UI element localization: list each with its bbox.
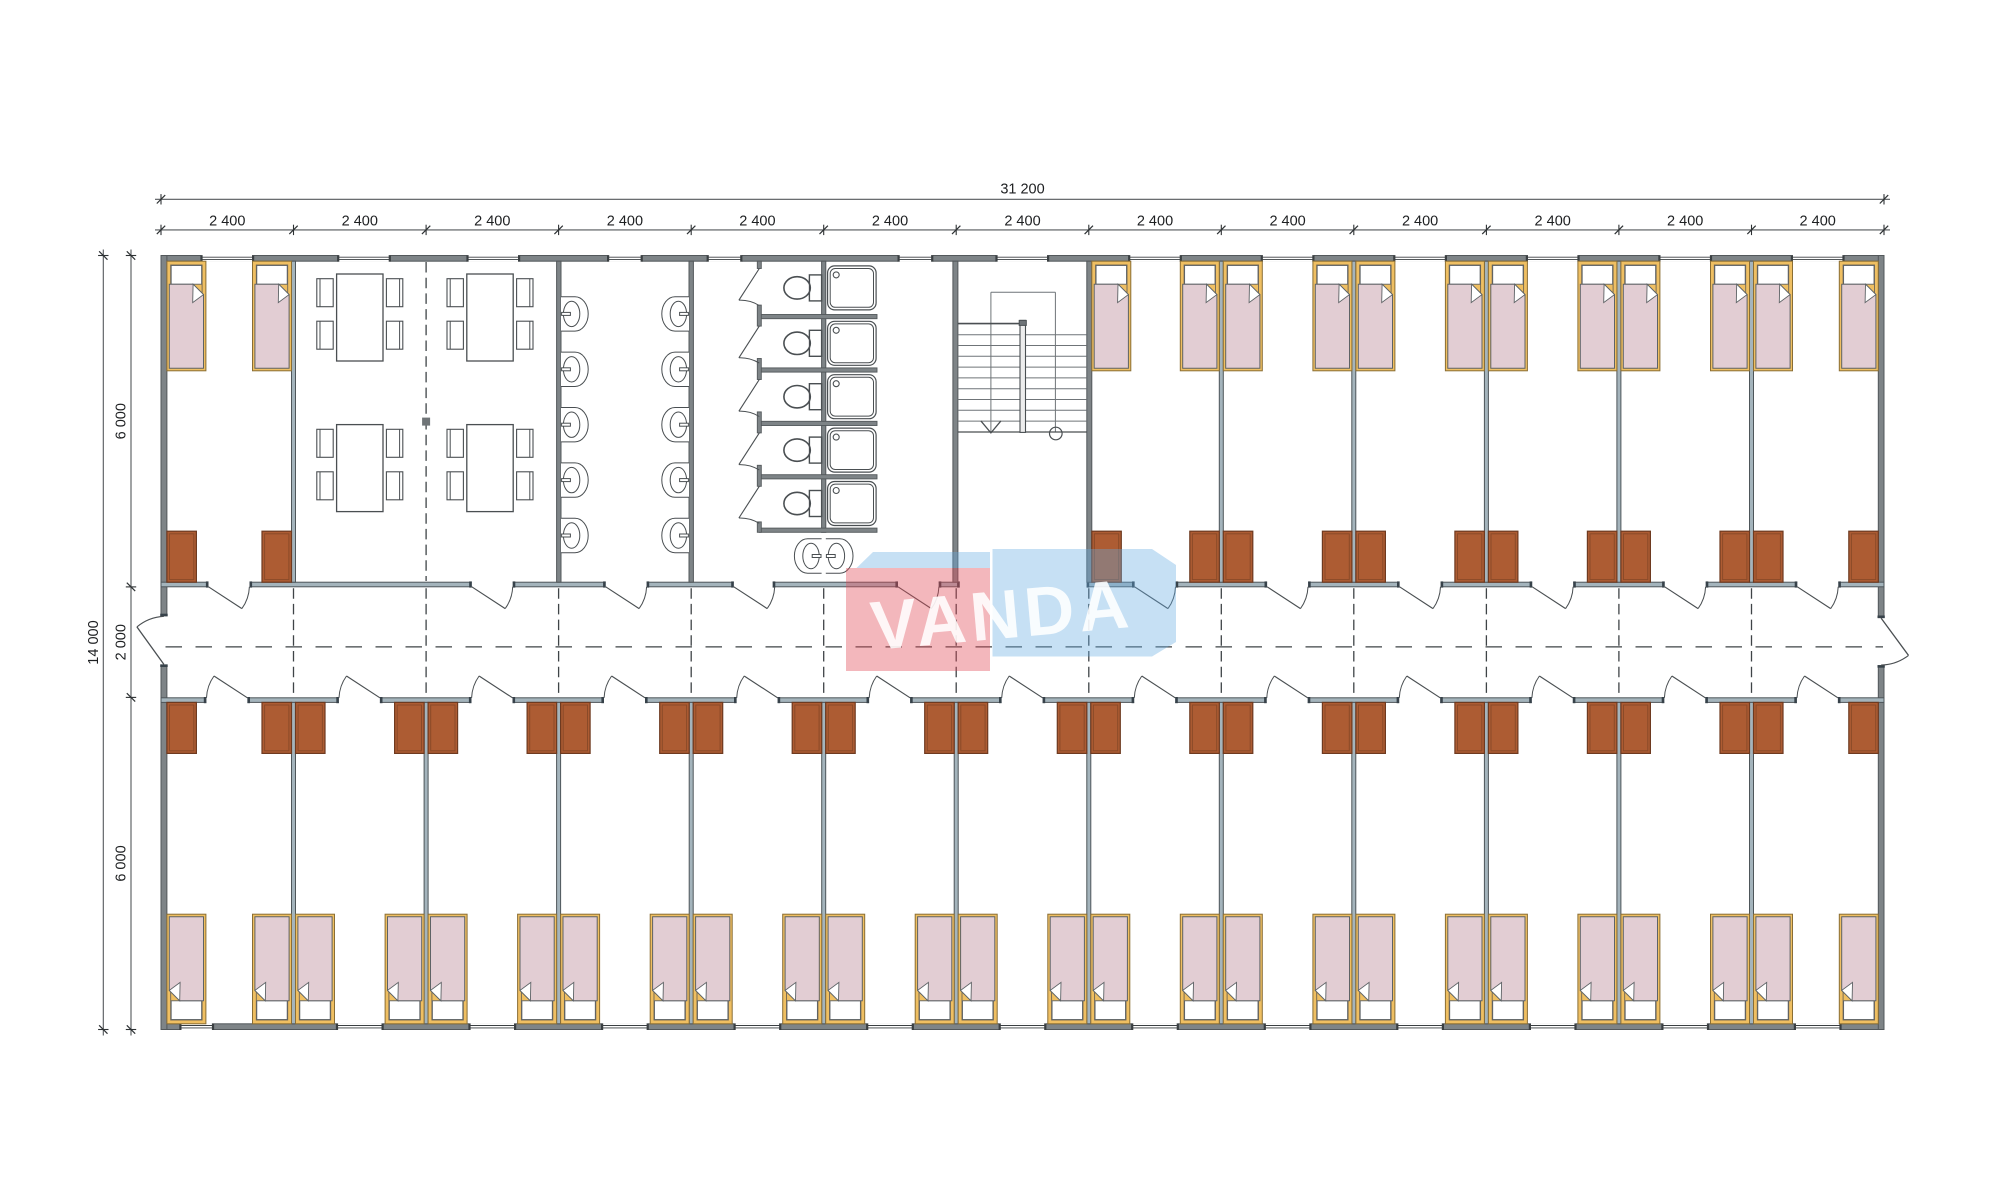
svg-text:2 400: 2 400	[209, 213, 245, 229]
svg-text:2 400: 2 400	[872, 213, 908, 229]
svg-text:2 400: 2 400	[1800, 213, 1836, 229]
svg-text:14 000: 14 000	[86, 620, 102, 664]
svg-text:2 400: 2 400	[739, 213, 775, 229]
svg-text:2 400: 2 400	[1004, 213, 1040, 229]
svg-text:6 000: 6 000	[114, 845, 130, 881]
svg-text:2 400: 2 400	[474, 213, 510, 229]
svg-text:2 000: 2 000	[114, 624, 130, 660]
svg-text:2 400: 2 400	[1137, 213, 1173, 229]
svg-text:2 400: 2 400	[1269, 213, 1305, 229]
svg-text:6 000: 6 000	[114, 403, 130, 439]
svg-text:31 200: 31 200	[1000, 182, 1044, 198]
svg-text:2 400: 2 400	[1667, 213, 1703, 229]
svg-text:2 400: 2 400	[342, 213, 378, 229]
svg-text:2 400: 2 400	[607, 213, 643, 229]
svg-text:2 400: 2 400	[1402, 213, 1438, 229]
svg-text:2 400: 2 400	[1535, 213, 1571, 229]
